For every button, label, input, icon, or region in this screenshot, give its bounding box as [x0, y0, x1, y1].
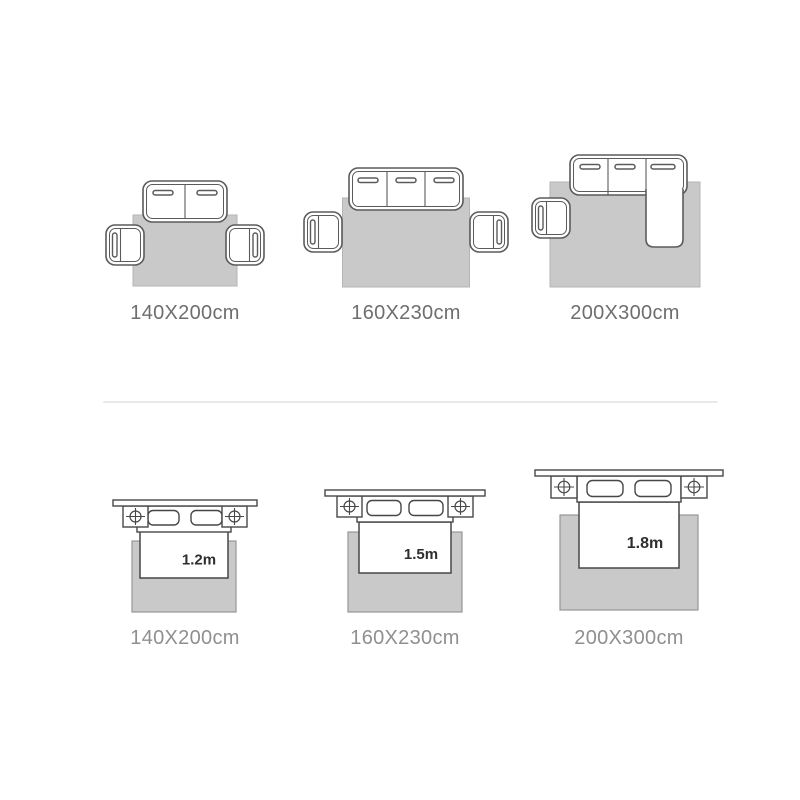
pillow-icon	[635, 481, 671, 497]
three-seat-sofa-icon	[349, 168, 463, 210]
nightstand-right-icon	[448, 496, 473, 517]
sofa-rug-scene-160x230	[300, 158, 512, 293]
rug-shape	[133, 215, 237, 286]
rug-size-guide: 140X200cm	[0, 0, 800, 800]
pillow-icon	[587, 481, 623, 497]
pillow-icon	[409, 501, 443, 516]
nightstand-left-icon	[551, 476, 577, 498]
sofa-rug-diagram-160x230	[300, 158, 512, 293]
sofa-rug-size-label-3: 200X300cm	[525, 302, 725, 325]
nightstand-right-icon	[681, 476, 707, 498]
bed-rug-diagram-200x300: 1.8m	[529, 460, 729, 615]
bed-rug-size-label-2: 160X230cm	[305, 627, 505, 650]
sofa-rug-size-label-1: 140X200cm	[85, 302, 285, 325]
sofa-rug-diagram-200x300	[520, 145, 720, 295]
bed-width-label: 1.8m	[627, 535, 663, 552]
sofa-rug-scene-140x200	[100, 170, 270, 295]
headboard-icon	[325, 490, 485, 496]
sofa-rug-scene-200x300	[520, 145, 720, 295]
bed-width-label: 1.5m	[404, 546, 438, 563]
armchair-left-icon	[532, 198, 570, 238]
headboard-icon	[535, 470, 723, 476]
armchair-left-icon	[106, 225, 144, 265]
armchair-right-icon	[226, 225, 264, 265]
bed-rug-size-label-3: 200X300cm	[529, 627, 729, 650]
bed-rug-scene-200x300: 1.8m	[529, 460, 729, 615]
bed-rug-scene-140x200: 1.2m	[100, 490, 270, 620]
nightstand-right-icon	[222, 506, 247, 527]
chaise-section	[646, 189, 683, 247]
nightstand-left-icon	[123, 506, 148, 527]
bed-width-label: 1.2m	[182, 551, 216, 568]
sofa-rug-diagram-140x200	[100, 170, 270, 295]
bed-rug-diagram-160x230: 1.5m	[310, 480, 500, 620]
sofa-rug-size-label-2: 160X230cm	[306, 302, 506, 325]
nightstand-left-icon	[337, 496, 362, 517]
pillow-icon	[191, 511, 222, 526]
pillow-icon	[148, 511, 179, 526]
two-seat-sofa-icon	[143, 181, 227, 222]
pillow-icon	[367, 501, 401, 516]
bed-rug-scene-160x230: 1.5m	[310, 480, 500, 620]
bed-icon	[577, 476, 681, 568]
headboard-icon	[113, 500, 257, 506]
bed-rug-size-label-1: 140X200cm	[85, 627, 285, 650]
bed-rug-diagram-140x200: 1.2m	[100, 490, 270, 620]
rug-shape	[343, 198, 470, 287]
section-divider	[103, 401, 718, 403]
armchair-left-icon	[304, 212, 342, 252]
armchair-right-icon	[470, 212, 508, 252]
